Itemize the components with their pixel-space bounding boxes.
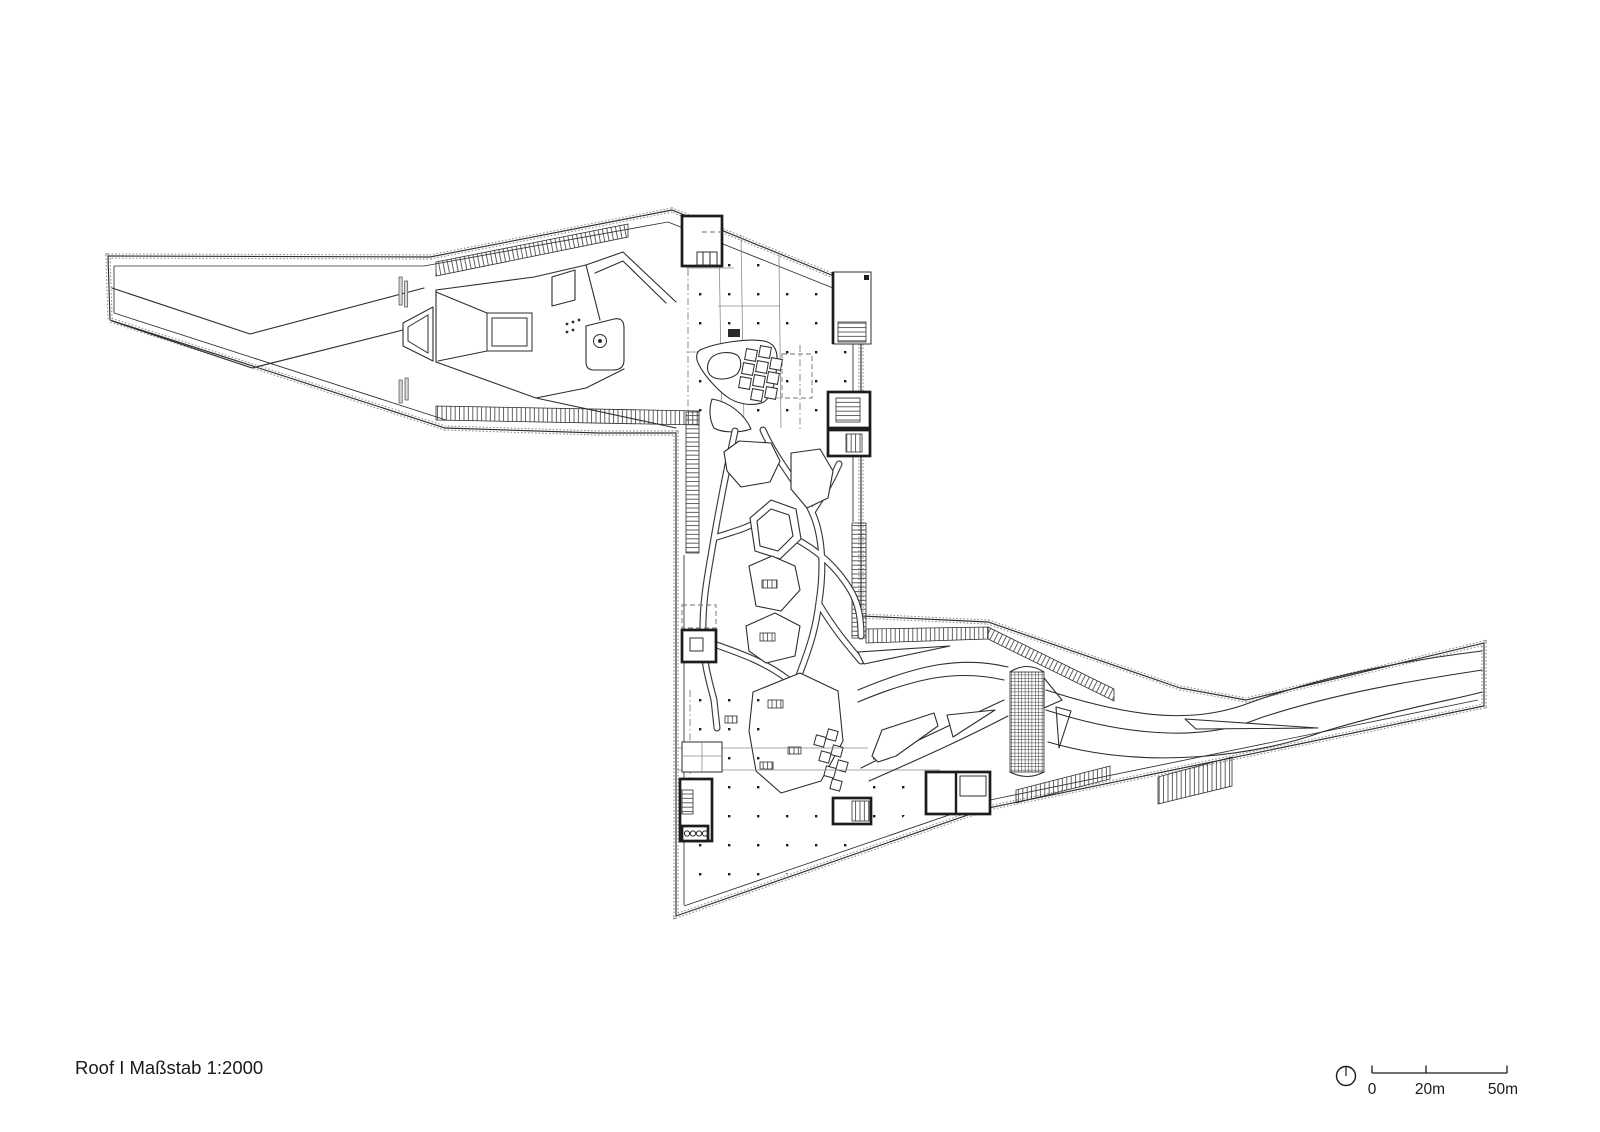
roof-window [487,313,532,351]
left-wing [112,224,699,553]
scale-label-end: 50m [1488,1081,1518,1098]
plan-caption: Roof I Maßstab 1:2000 [75,1057,263,1078]
skylight-slot [405,378,408,400]
skylight-slot [405,281,408,307]
skylight-opening [708,353,741,379]
stair-flight [852,801,869,821]
roof-facet [552,270,575,306]
footer: Roof I Maßstab 1:2000 0 20m 50m [75,1057,1518,1098]
shaft-room [682,630,716,662]
roof-plant-room [682,216,722,266]
parapet-inner-line [114,266,446,420]
skylight-slot [399,277,402,305]
roof-hatch [728,329,740,337]
skylight-slot [399,380,402,403]
stair-flight [836,398,860,422]
stair-flight [846,434,862,452]
core-room [926,772,990,814]
roof-louver-band [866,627,988,643]
roof-fold-line [436,292,487,361]
north-arrow-icon [1337,1067,1356,1086]
ramp-edge [858,675,1004,702]
roof-facet [858,646,950,664]
roof-ridge-line [586,252,676,302]
roof-sliver [1185,719,1318,729]
roof-opening [947,710,995,737]
scale-label-mid: 20m [1415,1081,1445,1098]
scale-bar [1372,1066,1507,1074]
roof-fixings [566,319,581,334]
roof-fold-line [586,265,600,320]
roof-opening [1056,707,1071,748]
elevator-bank [682,826,708,841]
roof-drain-center [598,339,602,343]
stair-flight [838,322,866,342]
stair-hatch-band [686,412,699,553]
terrace-plate [724,441,780,487]
scale-label-zero: 0 [1368,1081,1377,1098]
escalator-run [1010,672,1044,772]
terrace-plate [791,449,833,508]
stair-flight [682,790,693,814]
ramp-edge [858,662,1008,690]
stair-hatch-band [436,406,699,425]
architectural-sheet: Roof I Maßstab 1:2000 0 20m 50m [0,0,1600,1132]
opening-below-dashed [682,605,716,628]
roof-plan-drawing: Roof I Maßstab 1:2000 0 20m 50m [0,0,1600,1132]
roof-facet [1044,678,1062,708]
roof-fold-line [1046,670,1482,733]
roof-fold-line [112,321,403,368]
roof-fold-line [1046,651,1482,716]
